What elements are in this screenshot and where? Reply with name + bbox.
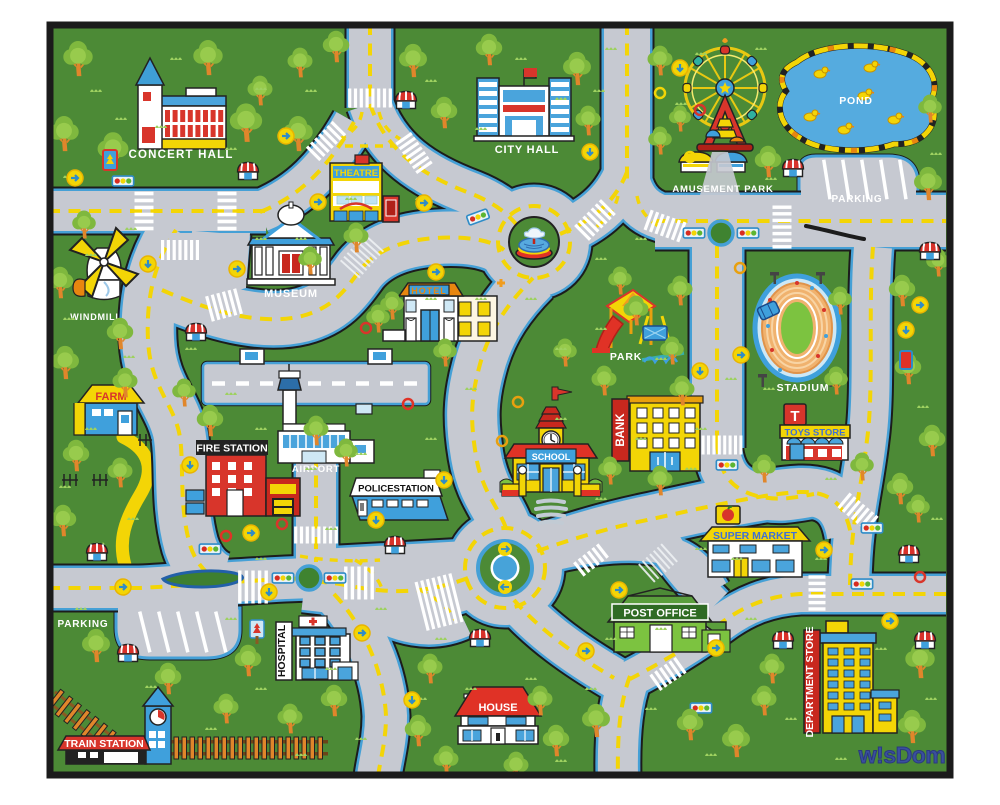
svg-text:AMUSEMENT PARK: AMUSEMENT PARK [672, 184, 773, 195]
svg-text:w!sDom: w!sDom [858, 742, 946, 768]
svg-text:PARKING: PARKING [832, 194, 883, 205]
svg-text:HOSPITAL: HOSPITAL [276, 624, 288, 677]
svg-text:PARK: PARK [610, 351, 642, 363]
svg-text:DEPARTMENT STORE: DEPARTMENT STORE [804, 626, 816, 737]
svg-text:TOYS STORE: TOYS STORE [785, 428, 846, 439]
svg-text:CITY HALL: CITY HALL [495, 144, 559, 156]
svg-text:FARM: FARM [95, 391, 126, 403]
svg-text:STADIUM: STADIUM [777, 382, 830, 394]
svg-text:TRAIN STATION: TRAIN STATION [64, 738, 144, 750]
svg-text:T: T [790, 408, 799, 425]
svg-text:BANK: BANK [615, 413, 627, 447]
svg-text:THEATRE: THEATRE [334, 168, 378, 179]
svg-text:POST OFFICE: POST OFFICE [623, 608, 696, 620]
svg-text:HOTEL: HOTEL [411, 286, 447, 296]
svg-text:HOUSE: HOUSE [478, 702, 517, 714]
svg-text:POLICESTATION: POLICESTATION [358, 484, 434, 495]
svg-text:MUSEUM: MUSEUM [264, 288, 318, 300]
svg-text:SCHOOL: SCHOOL [532, 452, 571, 462]
svg-text:FIRE STATION: FIRE STATION [196, 443, 267, 455]
svg-text:CONCERT HALL: CONCERT HALL [128, 149, 233, 161]
svg-text:SUPER MARKET: SUPER MARKET [713, 530, 798, 542]
svg-text:PARKING: PARKING [58, 619, 109, 630]
svg-text:POND: POND [839, 95, 873, 107]
